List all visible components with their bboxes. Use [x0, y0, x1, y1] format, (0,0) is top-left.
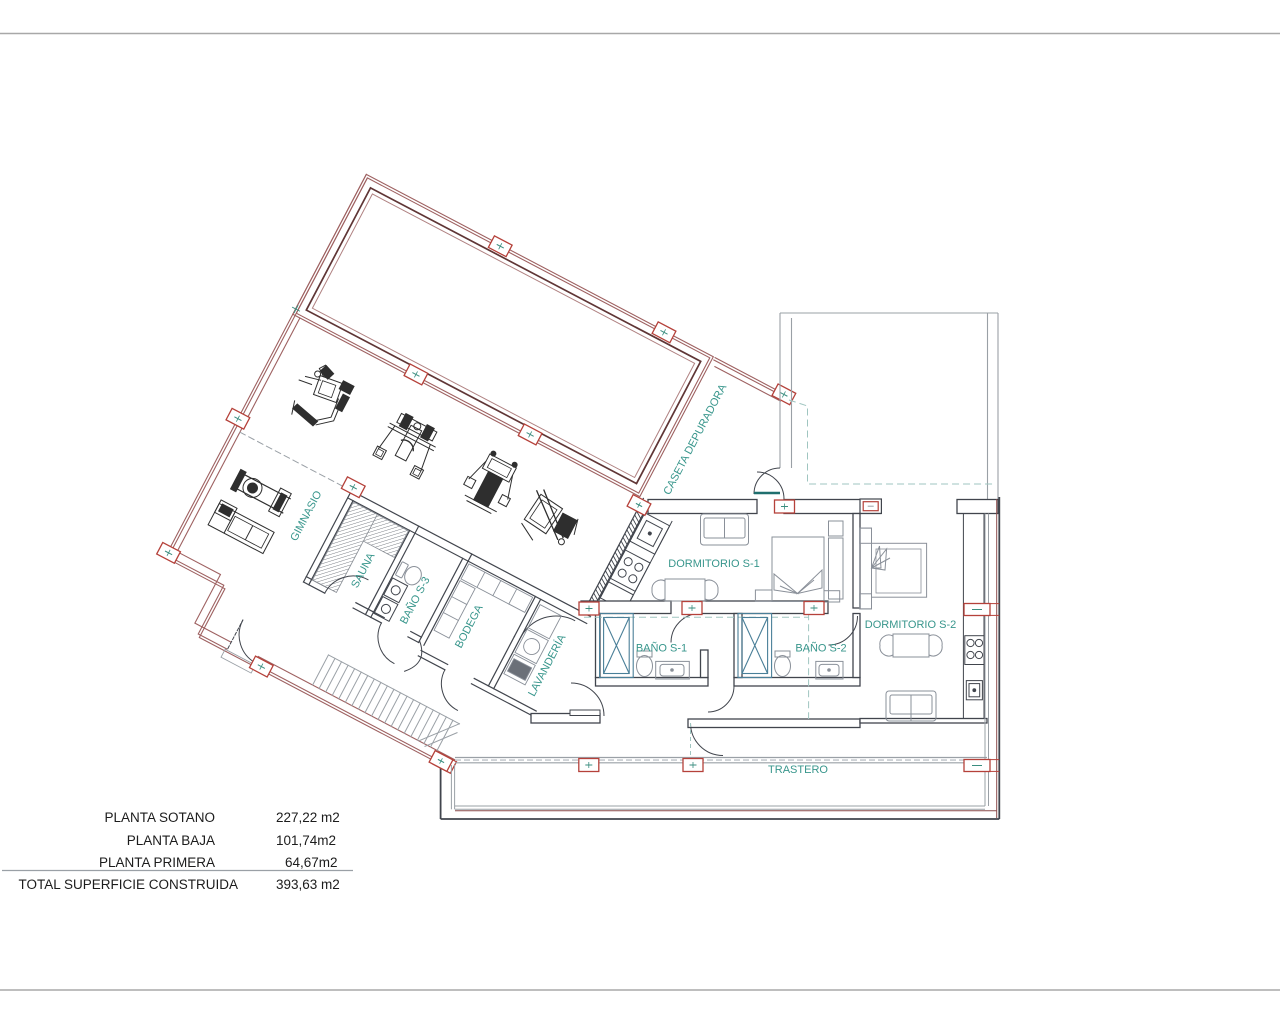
svg-text:PLANTA SOTANO: PLANTA SOTANO: [104, 810, 215, 825]
svg-text:TRASTERO: TRASTERO: [768, 764, 828, 776]
svg-text:PLANTA BAJA: PLANTA BAJA: [127, 833, 215, 848]
svg-text:TOTAL SUPERFICIE CONSTRUIDA: TOTAL SUPERFICIE CONSTRUIDA: [18, 877, 238, 892]
svg-text:BAÑO S-1: BAÑO S-1: [636, 642, 687, 655]
svg-text:DORMITORIO S-2: DORMITORIO S-2: [865, 619, 956, 631]
svg-text:CASETA DEPURADORA: CASETA DEPURADORA: [661, 382, 729, 497]
svg-text:64,67m2: 64,67m2: [285, 855, 338, 870]
svg-text:LAVANDERÍA: LAVANDERÍA: [525, 632, 568, 699]
svg-text:BAÑO S-2: BAÑO S-2: [795, 642, 846, 655]
svg-text:DORMITORIO S-1: DORMITORIO S-1: [668, 558, 759, 570]
svg-text:GIMNASIO: GIMNASIO: [288, 489, 324, 544]
svg-text:PLANTA PRIMERA: PLANTA PRIMERA: [99, 855, 215, 870]
svg-text:BAÑO S-3: BAÑO S-3: [397, 575, 432, 627]
svg-text:393,63 m2: 393,63 m2: [276, 877, 340, 892]
svg-text:BODEGA: BODEGA: [453, 602, 486, 650]
svg-text:227,22 m2: 227,22 m2: [276, 810, 340, 825]
svg-text:101,74m2: 101,74m2: [276, 833, 336, 848]
